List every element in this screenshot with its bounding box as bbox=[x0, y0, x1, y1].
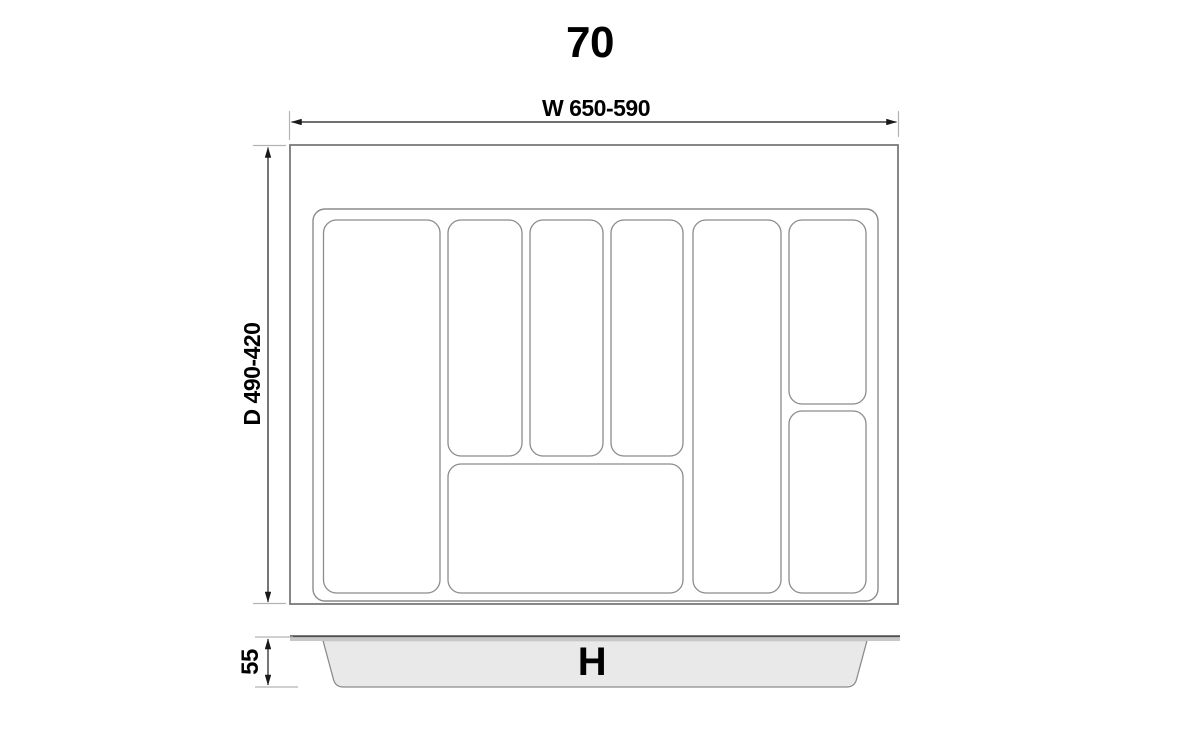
width-dimension-label: W 650-590 bbox=[496, 95, 696, 121]
compartment-5 bbox=[693, 220, 781, 593]
compartment-3 bbox=[530, 220, 603, 456]
compartment-2 bbox=[448, 220, 522, 456]
technical-drawing: 70 W 650-590 D 490-420 55 H bbox=[0, 0, 1200, 750]
compartment-8 bbox=[448, 464, 683, 593]
tray-outline bbox=[313, 209, 878, 601]
compartment-7 bbox=[789, 411, 866, 593]
depth-dimension-label: D 490-420 bbox=[239, 283, 265, 465]
height-dimension-label: 55 bbox=[239, 631, 263, 693]
drawer-frame-outline bbox=[290, 145, 898, 604]
side-height-label: H bbox=[542, 641, 642, 683]
compartment-4 bbox=[611, 220, 683, 456]
drawing-title: 70 bbox=[490, 20, 690, 66]
compartment-6 bbox=[789, 220, 866, 404]
compartment-1 bbox=[324, 220, 441, 593]
